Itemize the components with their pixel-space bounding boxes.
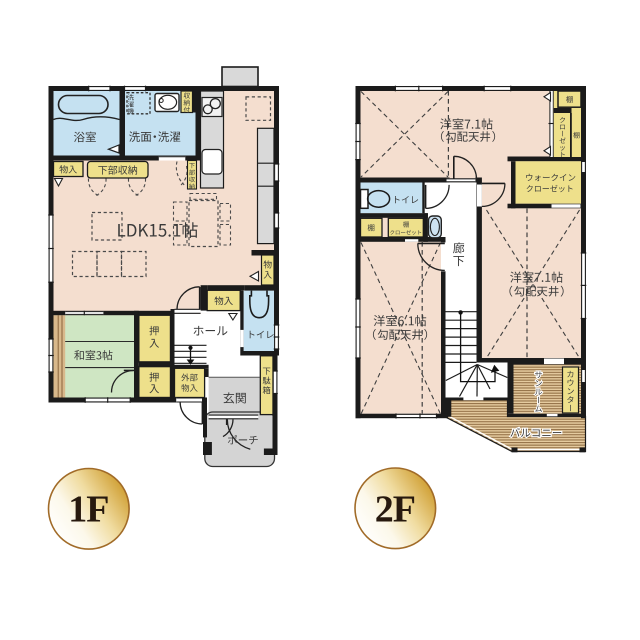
svg-text:2F: 2F [375, 489, 415, 531]
svg-text:1F: 1F [68, 489, 108, 531]
